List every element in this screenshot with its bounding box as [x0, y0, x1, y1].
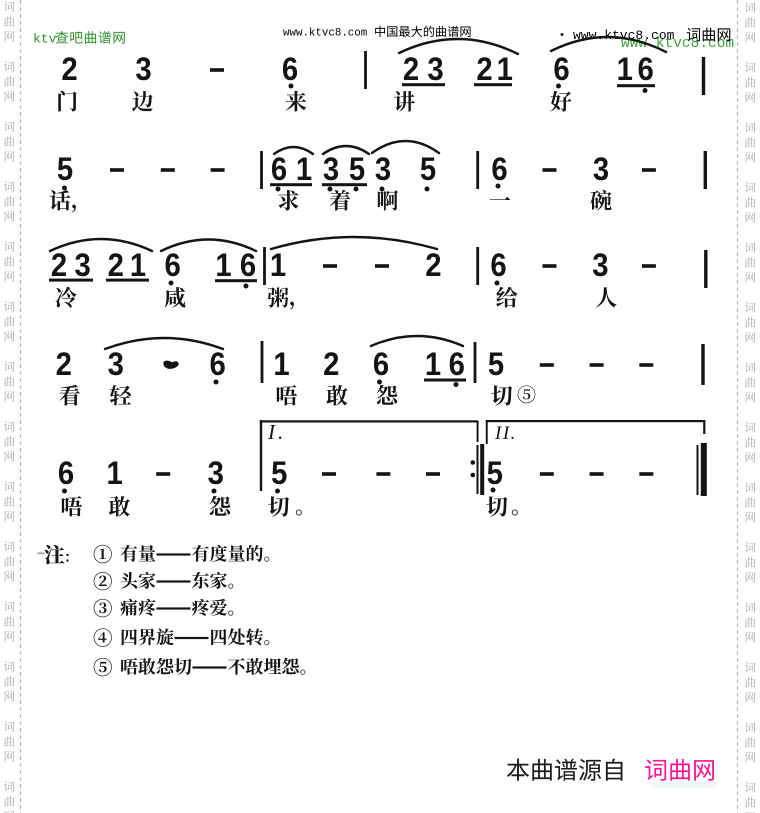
svg-text:1: 1: [497, 51, 513, 88]
svg-text:1: 1: [215, 247, 231, 284]
svg-text:5: 5: [57, 151, 73, 188]
svg-text:6: 6: [553, 51, 569, 88]
svg-text:2: 2: [425, 247, 441, 284]
svg-text:1: 1: [296, 151, 312, 188]
svg-text:3: 3: [592, 247, 608, 284]
svg-text:2: 2: [323, 346, 339, 383]
svg-text:3: 3: [135, 51, 151, 88]
svg-text:1: 1: [617, 51, 633, 88]
svg-text:1: 1: [270, 247, 286, 284]
svg-text:I.: I.: [267, 420, 286, 444]
svg-text:2: 2: [476, 51, 492, 88]
svg-text:5: 5: [420, 151, 436, 188]
svg-text:2: 2: [51, 247, 67, 284]
svg-text:5: 5: [488, 346, 504, 383]
svg-text:2: 2: [403, 51, 419, 88]
svg-text:3: 3: [323, 151, 339, 188]
svg-text:3: 3: [108, 346, 124, 383]
svg-text:2: 2: [61, 51, 77, 88]
svg-text:6: 6: [282, 51, 298, 88]
svg-text:3: 3: [593, 151, 609, 188]
svg-text:3: 3: [208, 455, 224, 492]
svg-text:6: 6: [490, 247, 506, 284]
svg-text:5: 5: [487, 455, 503, 492]
svg-text:6: 6: [209, 346, 225, 383]
svg-text:6: 6: [164, 247, 180, 284]
svg-text:II.: II.: [494, 423, 517, 444]
svg-text:6: 6: [240, 247, 256, 284]
svg-text:6: 6: [637, 51, 653, 88]
svg-text:5: 5: [349, 151, 365, 188]
svg-text:3: 3: [74, 247, 90, 284]
svg-text:1: 1: [106, 455, 122, 492]
svg-text:www.ktvc8.com: www.ktvc8.com: [573, 28, 675, 43]
svg-text:3: 3: [427, 51, 443, 88]
svg-text:2: 2: [56, 346, 72, 383]
svg-text:ktv: ktv: [33, 32, 57, 47]
svg-text:1: 1: [130, 247, 146, 284]
svg-text:5: 5: [271, 455, 287, 492]
svg-text:6: 6: [373, 346, 389, 383]
svg-text::: :: [65, 549, 70, 566]
svg-text:6: 6: [58, 455, 74, 492]
svg-text:3: 3: [375, 151, 391, 188]
svg-text:6: 6: [271, 151, 287, 188]
svg-text:6: 6: [491, 151, 507, 188]
svg-text:6: 6: [449, 346, 465, 383]
svg-text:1: 1: [425, 346, 441, 383]
svg-text:2: 2: [108, 247, 124, 284]
svg-text:1: 1: [273, 346, 289, 383]
svg-text:www.ktvc8.com: www.ktvc8.com: [283, 28, 367, 40]
